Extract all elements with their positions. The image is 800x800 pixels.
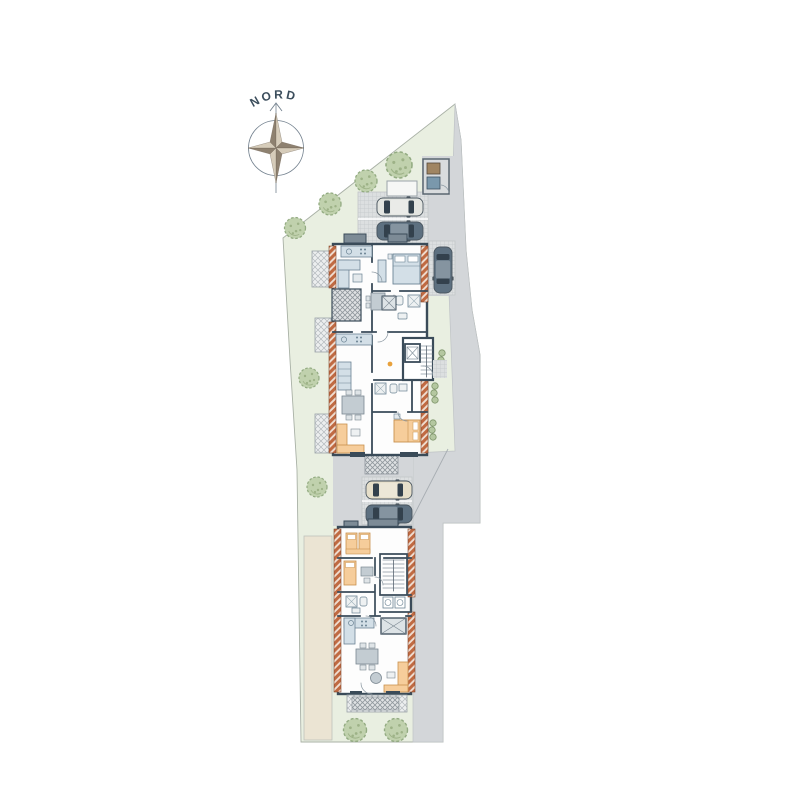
balcony-hatched — [315, 318, 331, 352]
waste-bin-icon — [427, 177, 440, 189]
tree-icon — [355, 170, 377, 192]
tree-icon — [307, 477, 327, 497]
roof-element — [388, 234, 407, 242]
washer — [395, 597, 405, 608]
shrub-icon — [429, 420, 436, 440]
roof-element — [400, 452, 418, 457]
shrub-icon — [431, 383, 438, 403]
entry-marker-dot — [388, 362, 393, 367]
washer — [383, 597, 393, 608]
roof-element — [350, 452, 365, 457]
roof-element — [368, 519, 398, 527]
waste-bin-icon — [427, 163, 440, 174]
site-plan-drawing: NORD — [0, 0, 800, 800]
tree-icon — [344, 719, 367, 742]
brick-wall — [408, 612, 415, 692]
building-upper — [312, 234, 447, 457]
terrace-hatched — [332, 289, 361, 321]
compass-star — [248, 113, 304, 183]
tree-icon — [285, 218, 306, 239]
roof-element — [344, 234, 366, 243]
gravel-path-strip — [304, 536, 332, 740]
brick-wall — [334, 529, 341, 692]
building-lower — [334, 519, 415, 712]
garden-shed — [387, 181, 417, 196]
site-plan-canvas: NORD — [0, 0, 800, 800]
tree-icon — [299, 368, 319, 388]
bin-enclosure — [423, 159, 449, 194]
terrace-hatched — [365, 455, 398, 474]
tree-icon — [319, 193, 341, 215]
car-top-view-icon — [432, 247, 453, 293]
terrace-hatched-inner — [352, 697, 399, 710]
brick-wall — [329, 322, 336, 453]
tree-icon — [385, 719, 408, 742]
brick-wall — [421, 246, 428, 302]
brick-wall — [408, 529, 415, 597]
car-top-view-icon — [377, 196, 423, 217]
compass-rose-icon: NORD — [248, 87, 304, 193]
balcony-hatched — [312, 251, 331, 287]
car-top-view-icon — [366, 479, 412, 500]
brick-wall — [329, 246, 336, 288]
entrance-path-dotted — [433, 360, 447, 378]
tree-icon — [386, 152, 412, 178]
balcony-hatched — [315, 414, 331, 453]
